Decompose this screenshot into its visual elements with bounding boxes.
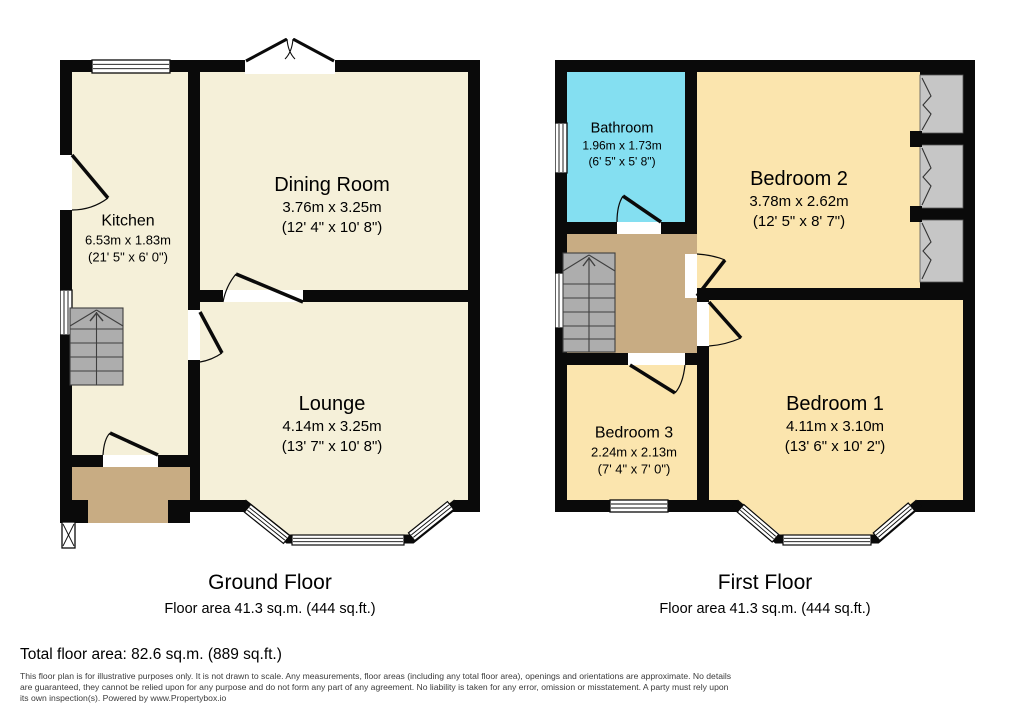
ground-floor-drawing [60,38,480,550]
porch-wall-left [60,500,90,523]
kitchen-label: Kitchen 6.53m x 1.83m (21' 5" x 6' 0") [85,210,171,265]
first-floor-caption: First Floor Floor area 41.3 sq.m. (444 s… [555,571,975,617]
stairs-icon [70,308,123,385]
porch-wall-right [166,500,190,523]
bedroom3-label: Bedroom 3 2.24m x 2.13m (7' 4" x 7' 0") [591,422,677,477]
french-doors-icon [245,39,335,74]
lounge-label: Lounge 4.14m x 3.25m (13' 7" x 10' 8") [282,391,383,457]
bedroom2-label: Bedroom 2 3.78m x 2.62m (12' 5" x 8' 7") [749,166,848,232]
first-floor-area: Floor area 41.3 sq.m. (444 sq.ft.) [555,601,975,617]
bathroom-window-icon [555,123,567,173]
porch [88,500,168,523]
first-floor-title: First Floor [555,571,975,595]
ground-floor-plan: Kitchen 6.53m x 1.83m (21' 5" x 6' 0") D… [60,38,480,550]
porch-window-icon [62,522,75,548]
entrance-hall [72,467,190,500]
bedroom3-window-icon [610,500,668,512]
disclaimer-text: This floor plan is for illustrative purp… [20,671,732,704]
wardrobe-icon [920,75,963,282]
bedroom1-label: Bedroom 1 4.11m x 3.10m (13' 6" x 10' 2"… [785,391,886,457]
ground-floor-caption: Ground Floor Floor area 41.3 sq.m. (444 … [60,571,480,617]
total-floor-area: Total floor area: 82.6 sq.m. (889 sq.ft.… [20,646,282,664]
bathroom-label: Bathroom 1.96m x 1.73m (6' 5" x 5' 8") [582,120,661,171]
wall-stub [910,131,922,147]
dining-room-label: Dining Room 3.76m x 3.25m (12' 4" x 10' … [274,172,390,238]
wall-stub [910,206,922,222]
ground-floor-area: Floor area 41.3 sq.m. (444 sq.ft.) [60,601,480,617]
stairs-icon [563,253,615,352]
first-floor-plan: Bathroom 1.96m x 1.73m (6' 5" x 5' 8") B… [555,38,975,550]
kitchen-window-icon [92,60,170,73]
floorplan-page: Kitchen 6.53m x 1.83m (21' 5" x 6' 0") D… [0,0,1029,720]
ground-floor-title: Ground Floor [60,571,480,595]
